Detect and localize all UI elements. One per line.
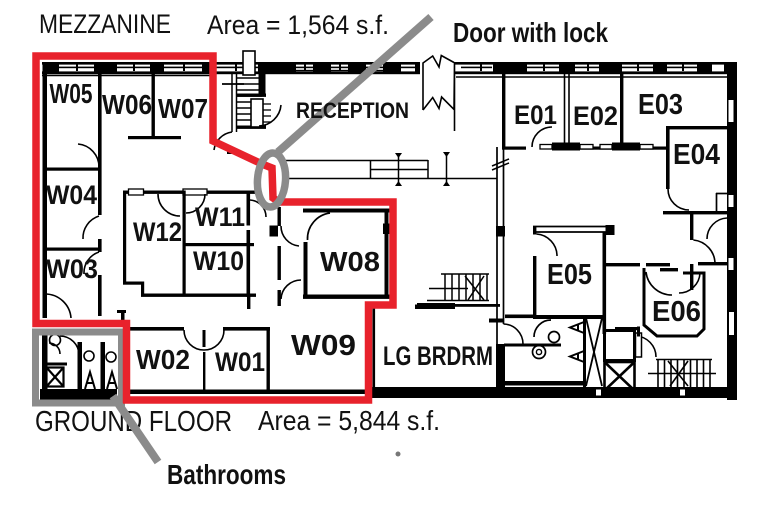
svg-text:Area = 5,844 s.f.: Area = 5,844 s.f.	[258, 405, 440, 436]
svg-text:W10: W10	[193, 246, 244, 276]
svg-text:W08: W08	[320, 246, 380, 277]
svg-text:W02: W02	[136, 344, 190, 375]
svg-text:W04: W04	[46, 180, 97, 210]
svg-text:Area = 1,564 s.f.: Area = 1,564 s.f.	[207, 10, 389, 40]
svg-text:E03: E03	[638, 89, 683, 121]
svg-text:W09: W09	[291, 330, 356, 362]
svg-text:W03: W03	[46, 254, 98, 284]
svg-text:W05: W05	[50, 78, 93, 109]
svg-text:W11: W11	[195, 202, 245, 232]
svg-text:W07: W07	[158, 93, 208, 124]
svg-text:LG BRDRM: LG BRDRM	[383, 341, 493, 371]
svg-text:MEZZANINE: MEZZANINE	[39, 9, 171, 39]
svg-text:E04: E04	[673, 139, 720, 171]
svg-text:W12: W12	[133, 217, 182, 247]
svg-text:RECEPTION: RECEPTION	[296, 98, 409, 123]
svg-text:E05: E05	[547, 259, 592, 291]
svg-text:Bathrooms: Bathrooms	[167, 459, 286, 490]
svg-text:E01: E01	[514, 100, 557, 130]
svg-text:Door with lock: Door with lock	[453, 17, 608, 48]
svg-text:W01: W01	[215, 347, 265, 377]
svg-text:E02: E02	[573, 101, 618, 131]
svg-text:E06: E06	[652, 296, 701, 328]
svg-text:W06: W06	[102, 89, 152, 120]
